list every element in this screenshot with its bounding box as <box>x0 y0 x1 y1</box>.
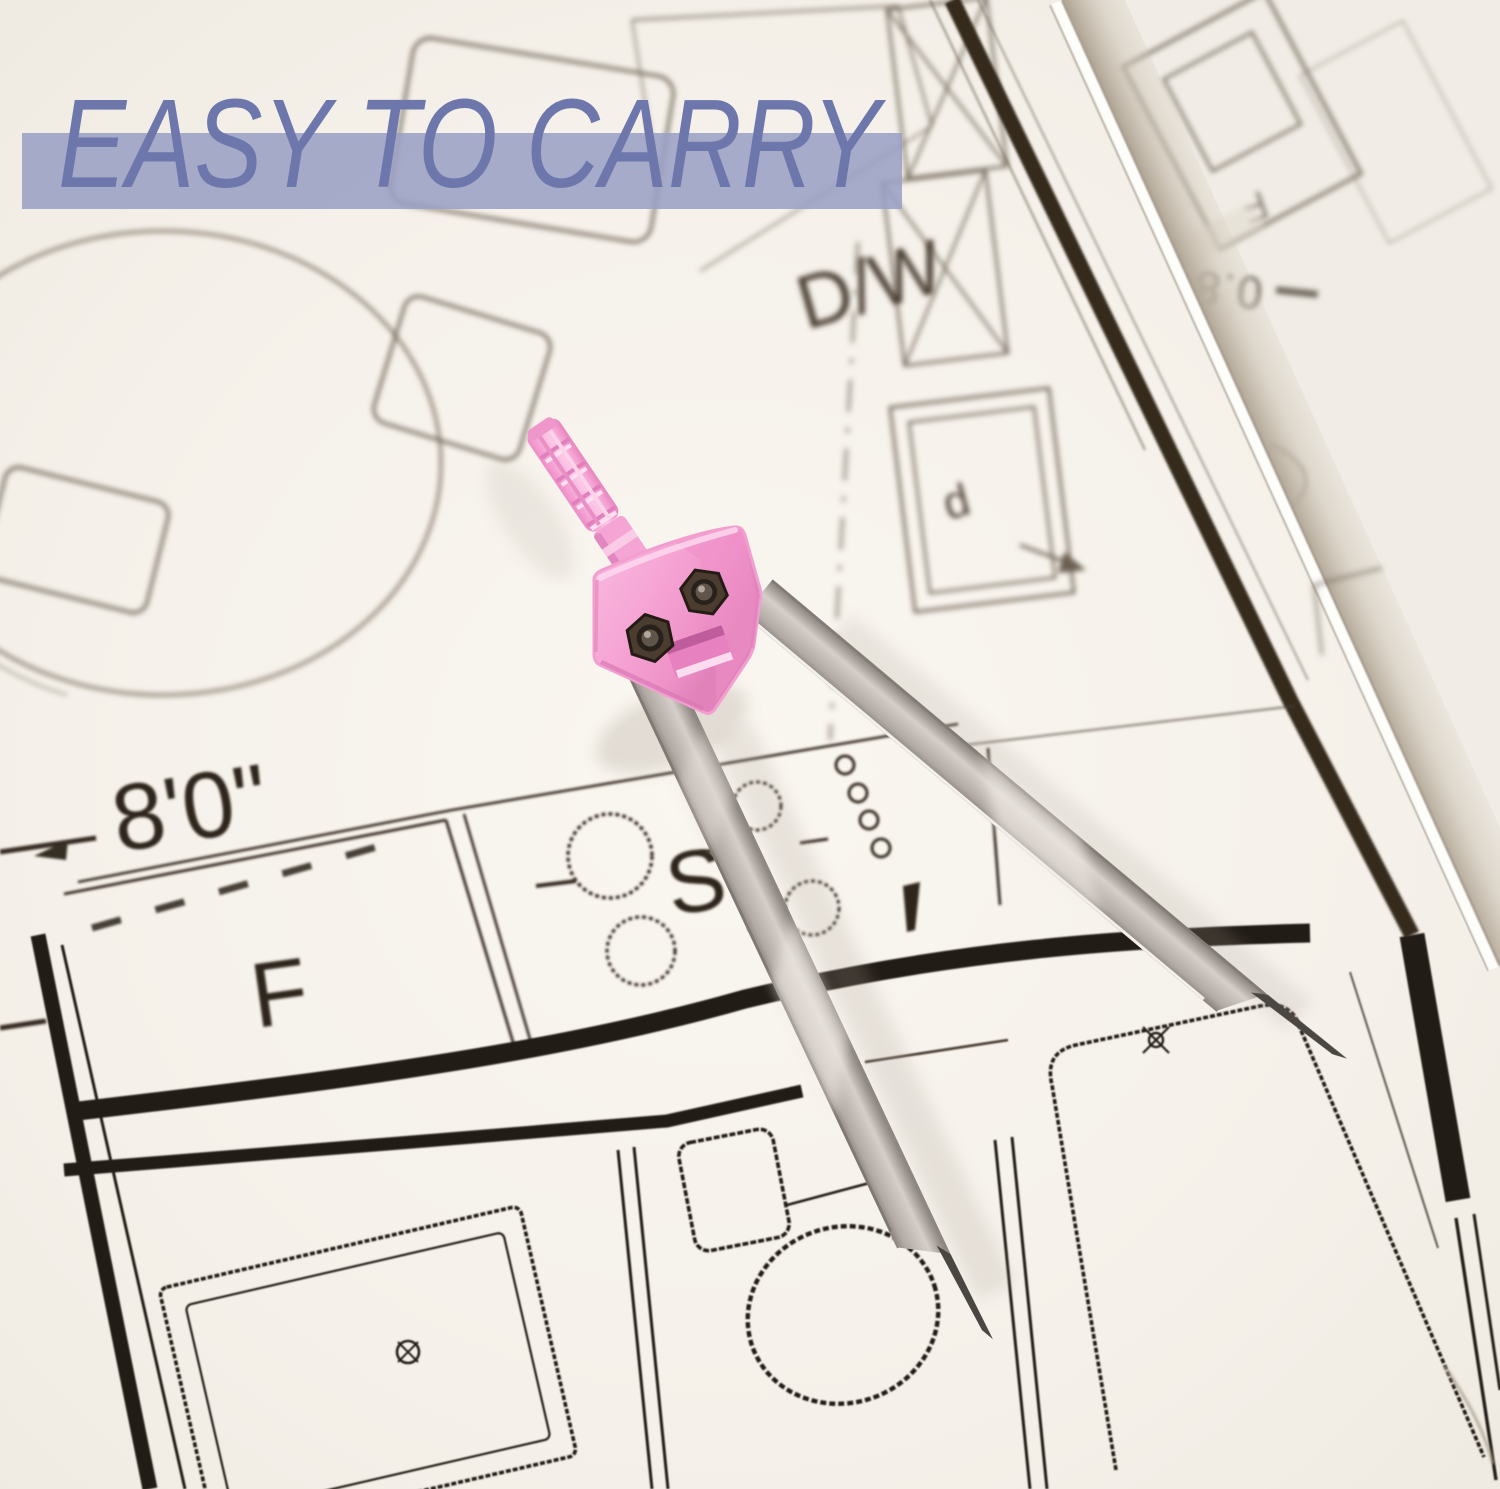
svg-text:EASY TO CARRY: EASY TO CARRY <box>58 73 886 214</box>
